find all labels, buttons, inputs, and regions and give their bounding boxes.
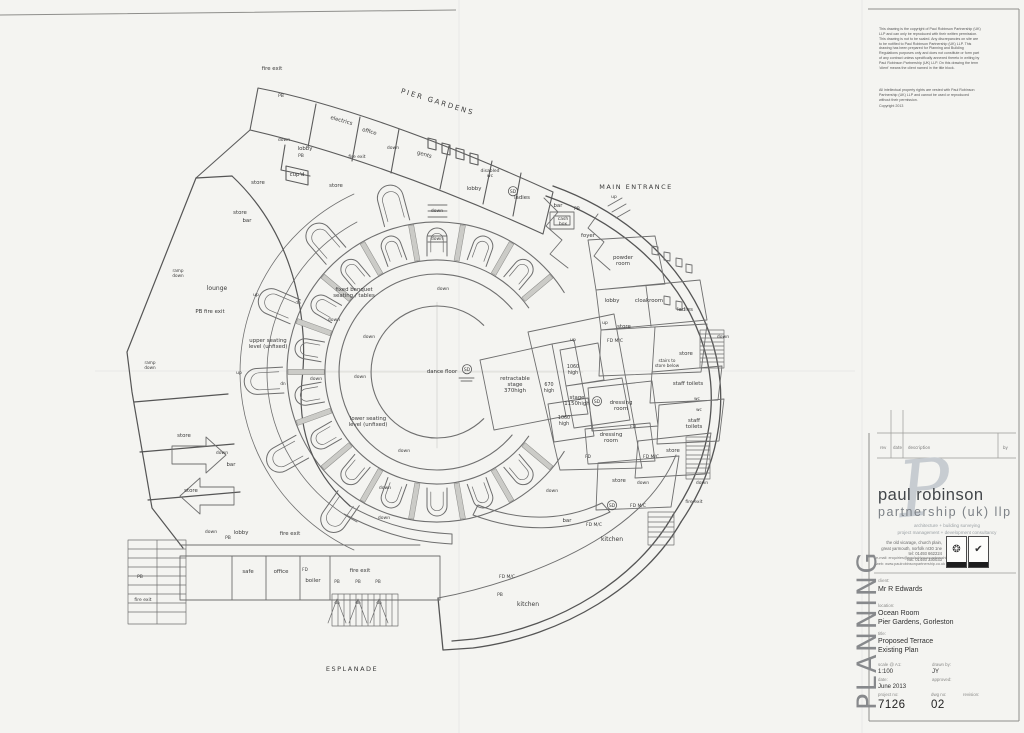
booth-arc [467,233,495,266]
plan-label: fire exit [134,597,151,603]
plan-label: bar [563,518,573,524]
plan-label: down [328,317,340,323]
plan-label: FD [585,454,591,459]
seating-booth [378,478,406,511]
plan-label: lobby [605,298,621,304]
plan-label: gents [416,150,432,160]
booth-arc [308,226,340,259]
seating-booth-outer [374,182,409,226]
booth-arc [504,255,537,289]
plan-label: room [604,438,618,444]
east-outer-walls [546,186,721,522]
plan-label: lobby [298,146,314,152]
plan-label: down [144,365,156,370]
project-no-value: 7126 [878,699,906,711]
seating-booth [504,255,537,289]
check-icon: ✔ [969,537,988,562]
south-west-rooms [180,545,440,600]
sd-marker: SD [609,503,616,509]
booth-separator [409,483,420,519]
plan-label: 1060 [558,415,570,421]
plan-label: lobby [234,530,250,536]
firm-tagline-1: architecture + building surveying [878,523,1016,528]
drawing-title-line1: Proposed Terrace [878,638,933,645]
sd-marker: SD [594,399,601,405]
booth-arc [467,478,495,511]
booth-arc [343,460,365,482]
plan-label: store below [655,363,680,368]
certification-badge-1: ❂ [946,536,967,568]
location-line2: Pier Gardens, Gorleston [878,619,953,626]
plan-label: down [398,448,410,454]
plan-label: box [559,221,567,227]
plan-label: FD [630,424,636,429]
plan-label: PB [225,535,231,541]
plan-label: PB [334,579,340,584]
plan-label: dance floor [427,369,458,375]
plan-label: dn [295,300,301,305]
site-label-pier-gardens: PIER GARDENS [400,87,475,117]
plan-label: down [379,485,391,491]
booth-arc [378,233,406,266]
plan-geometry [127,88,724,650]
drawing-sheet: fire exitPBPIER GARDENSelectricsofficedo… [0,0,1024,733]
plan-label: lobby [467,186,483,192]
booth-arc [323,497,353,530]
south-outer-walls [438,515,681,650]
plan-label: store [233,210,247,216]
plan-label: down [717,334,729,340]
plan-label: down [172,273,184,278]
booth-arc [384,240,402,262]
plan-labels: fire exitPBPIER GARDENSelectricsofficedo… [134,66,729,673]
plan-label: high [568,370,578,376]
plan-label: down [696,480,708,486]
booth-arc [472,483,490,505]
booth-arc [504,454,537,488]
plan-label: down [431,236,443,242]
plan-label: down [278,137,290,143]
plan-label: kitchen [601,536,623,543]
booth-separator [522,274,553,301]
plan-label: up [236,371,242,376]
booth-arc [299,387,320,402]
seating-booth [427,488,447,516]
plan-label: 1060 [567,364,579,370]
booth-separator [321,443,352,470]
plan-label: dn [334,600,340,605]
drawn-by-label: drawn by: [932,662,951,667]
booth-arc [270,441,303,470]
plan-label: down [378,515,390,521]
drawing-title-label: title: [878,631,886,636]
badge-bar [969,562,988,567]
plan-label: PB [278,93,284,99]
booth-arc [293,337,324,362]
seating-booth [293,337,324,362]
client-value: Mr R Edwards [878,586,922,593]
location-label: location: [878,603,894,608]
plan-label: high [544,388,554,394]
sd-marker: SD [464,367,471,373]
booth-separator [360,242,383,276]
plan-label: FD [302,567,308,572]
plan-label: safe [242,569,254,575]
banquet-seating-ring [244,182,553,537]
booth-arc [301,218,346,264]
seating-booth [337,454,370,488]
booth-arc [343,262,365,284]
plan-label: PB fire exit [195,309,224,315]
plan-label: level (unfixed) [349,422,388,428]
plan-label: FD M/C [643,454,659,460]
plan-label: up [602,321,608,326]
plan-label: up [611,195,617,200]
plan-label: kitchen [517,601,539,608]
plan-label: up [253,293,259,298]
plan-label: store [666,448,680,454]
plan-label: down [310,376,322,382]
site-label-esplanade: ESPLANADE [326,665,378,673]
dwg-no-value: 02 [931,699,945,711]
plan-label: office [274,569,289,575]
seating-booth-outer [254,285,300,324]
seating-booth [307,421,341,452]
certification-badge-2: ✔ [968,536,989,568]
plan-label: wc [696,407,702,412]
north-wing-walls [196,88,553,234]
plan-label: store [679,351,693,357]
booth-arc [509,262,531,284]
plan-label: store [612,478,626,484]
plan-label: level (unfixed) [249,344,288,350]
by-col-header: by [1003,445,1009,450]
plan-label: down [205,529,217,535]
approved-label: approved: [932,677,952,682]
plan-label: ladies [677,307,693,313]
plan-label: room [616,261,630,267]
seating-booth [378,233,406,266]
date-label: date: [878,677,888,682]
booth-separator [491,469,514,503]
plan-label: down [216,450,228,456]
client-label: client: [878,578,889,583]
firm-name: paul robinson [878,486,984,505]
project-no-label: project no: [878,692,899,697]
plan-label: down [637,480,649,486]
booth-separator [454,483,465,519]
booth-arc [378,478,406,511]
plan-label: FD M/C [499,574,515,580]
booth-arc [262,435,309,477]
plan-label: staff toilets [673,381,703,387]
plan-label: bar [227,462,237,468]
plan-label: fire exit [280,531,301,537]
plan-label: fire exit [262,66,283,72]
plan-label: high [559,421,569,427]
plan-label: seating / tables [333,293,375,299]
plan-label: lounge [207,285,228,292]
plan-label: store [184,488,198,494]
plan-label: up [570,338,576,343]
plan-label: 1150high [564,401,589,407]
booth-separator [288,369,324,374]
plan-label: PB [574,206,580,212]
plan-label: foyer [581,233,596,239]
booth-separator [491,242,514,276]
ip-rights-note: All intellectual property rights are ves… [879,88,981,103]
booth-arc [472,240,490,262]
plan-label: PB [375,579,381,584]
firm-name-line2: partnership (uk) llp [878,505,1012,519]
seal-icon: ❂ [947,537,966,562]
booth-arc [337,454,370,488]
plan-label: FD M/C [607,338,623,344]
plan-label: fire exit [685,499,702,505]
plan-label: store [329,183,343,189]
plan-label: wc [694,396,700,401]
seating-booth [293,382,324,407]
floor-plan-drawing: fire exitPBPIER GARDENSelectricsofficedo… [0,0,1024,733]
booth-arc [509,460,531,482]
badge-bar [947,562,966,567]
centre-lines [302,302,583,448]
seating-booth [337,255,370,289]
plan-label: down [363,334,375,340]
plan-label: FD M/C [630,503,646,509]
plan-label: store [177,433,191,439]
plan-label: fire exit [348,154,365,160]
booth-separator [296,319,332,336]
plan-label: room [614,406,628,412]
plan-label: 670 [544,382,553,388]
plan-label: toilets [686,424,703,430]
plan-label: 370high [504,388,526,394]
location-line1: Ocean Room [878,610,919,617]
site-label-main-entrance: MAIN ENTRANCE [599,183,673,191]
booth-separator [454,225,465,261]
plan-label: dn [355,600,361,605]
plan-label: down [437,286,449,292]
booth-arc [374,182,409,226]
plan-label: store [251,180,265,186]
plan-label: dn [376,600,382,605]
servery-swoosh-wall [344,506,452,544]
seating-booth-outer [301,218,346,264]
seating-booth-outer [262,435,309,477]
booth-arc [431,492,443,511]
booth-arc [307,421,341,452]
firm-tagline-2: project management + development consult… [878,530,1016,535]
plan-label: cup'd [290,172,305,178]
drawn-by-value: JY [932,669,939,675]
plan-label: ladies [514,195,530,201]
seating-booth [467,478,495,511]
seating-booth [467,233,495,266]
seating-booth [504,454,537,488]
plan-label: PB [298,153,304,159]
plan-label: dn [280,381,286,386]
date-value: June 2013 [878,684,906,690]
plan-label: down [354,374,366,380]
plan-label: store [617,324,631,330]
plan-label: down [387,145,399,151]
booth-arc [299,342,320,357]
plan-label: bar [243,218,253,224]
plan-label: electrics [330,115,354,127]
plan-label: boiler [305,578,321,584]
copyright-year: Copyright 2013 [879,104,981,109]
plan-label: down [546,488,558,494]
plan-label: wc [487,174,494,179]
booth-arc [337,255,370,289]
booth-separator [522,443,553,470]
plan-label: PB [355,579,361,584]
plan-label: cloakroom [635,298,663,304]
booth-arc [250,372,279,390]
booth-arc [381,190,405,222]
booth-arc [293,382,324,407]
plan-label: PB [497,592,503,598]
plan-label: office [361,127,378,137]
scan-crease-lines [95,0,862,733]
copyright-disclaimer: This drawing is the copyright of Paul Ro… [879,27,981,71]
plan-label: fire exit [350,568,371,574]
plan-label: FD M/C [586,522,602,528]
booth-arc [254,285,300,324]
booth-arc [427,488,447,516]
rev-col-header: rev [880,445,887,450]
revision-label: revision: [963,692,979,697]
scale-label: scale @ A1: [878,662,902,667]
dwg-no-label: dwg no: [931,692,946,697]
plan-label: down [431,208,443,214]
booth-separator [409,225,420,261]
plan-label: PB [137,574,143,580]
drawing-title-line2: Existing Plan [878,647,918,654]
plan-label: bar [554,203,564,209]
scale-value: 1:100 [878,669,893,675]
